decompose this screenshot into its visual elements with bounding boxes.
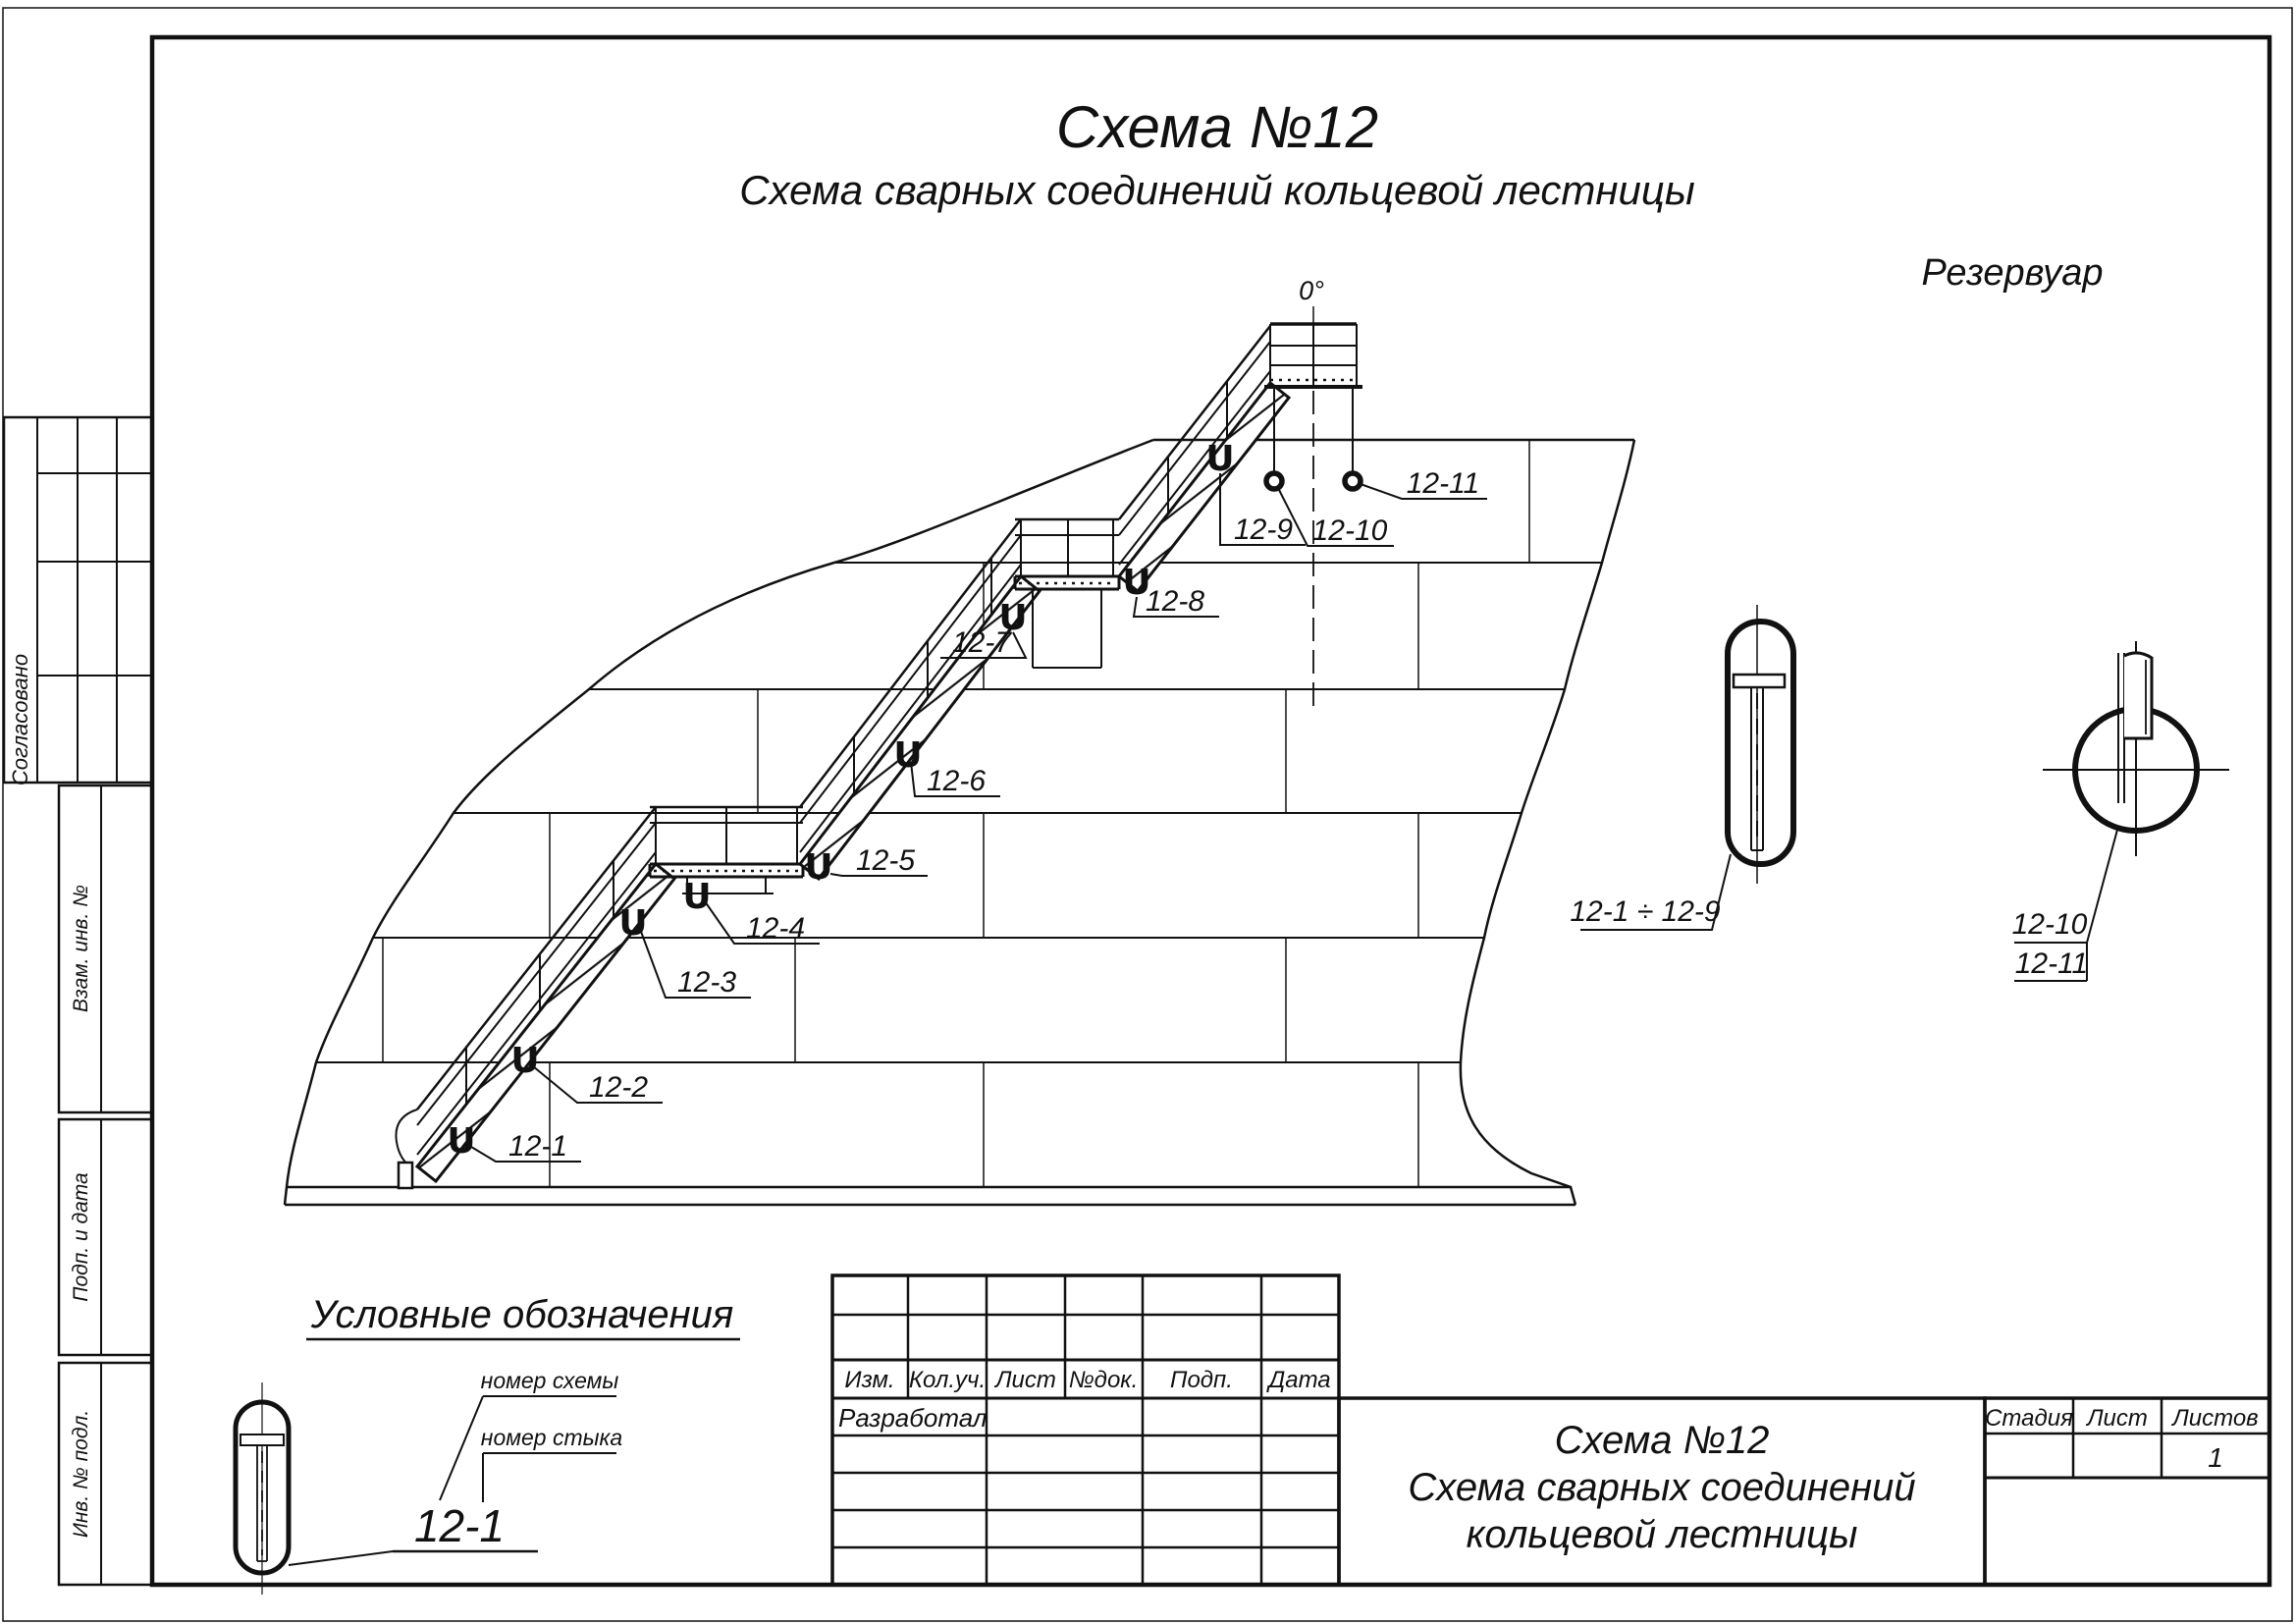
joint-labels: 12-1 12-2 12-3 12-4 12-5 12-6 12-7 12-8 <box>471 467 1487 1163</box>
main-subtitle: Схема сварных соединений кольцевой лестн… <box>739 167 1695 213</box>
title-block: Изм. Кол.уч. Лист №док. Подп. Дата Разра… <box>832 1275 2269 1585</box>
doc-title-cell: Схема №12 Схема сварных соединений кольц… <box>1339 1398 1985 1585</box>
joint-label-text: 12-5 <box>856 844 915 877</box>
legend-example: 12-1 <box>414 1500 505 1551</box>
joint-label-text: 12-2 <box>589 1071 648 1104</box>
joint-label-12-3: 12-3 <box>640 929 751 999</box>
joint-label-12-1: 12-1 <box>471 1130 581 1163</box>
drawing-sheet: Согласовано Взам. инв. № Подп. и дата Ин… <box>0 0 2296 1624</box>
revision-table: Изм. Кол.уч. Лист №док. Подп. Дата Разра… <box>832 1275 1339 1585</box>
rev-header-podp: Подп. <box>1170 1367 1233 1393</box>
joint-label-12-10: 12-10 <box>1278 488 1394 547</box>
weld-marker-12-4: U <box>682 877 711 917</box>
doc-title-line-2: Схема сварных соединений <box>1408 1466 1915 1509</box>
podp-data-label: Подп. и дата <box>70 1172 92 1301</box>
reservoir-label: Резервуар <box>1922 252 2104 294</box>
joint-label-text: 12-1 <box>508 1130 567 1163</box>
stage-sheet-section: Стадия Лист Листов 1 <box>1985 1398 2269 1585</box>
main-title: Схема №12 <box>1056 94 1378 160</box>
joint-label-text: 12-9 <box>1234 514 1293 546</box>
joint-label-text: 12-7 <box>952 626 1012 659</box>
left-stamp-grid: Согласовано <box>4 417 152 785</box>
stair-flight-3 <box>1119 326 1289 591</box>
joint-label-text: 12-8 <box>1146 585 1204 618</box>
weld-ring-12-11 <box>1345 473 1361 489</box>
joint-label-text: 12-4 <box>746 912 805 945</box>
joint-label-text: 12-6 <box>927 765 986 797</box>
angle-label: 0° <box>1299 276 1324 305</box>
rev-header-ndok: №док. <box>1069 1367 1139 1393</box>
sheets-value: 1 <box>2208 1442 2223 1473</box>
zero-degree-centerline: 0° <box>1299 276 1324 713</box>
weld-marker-12-1: U <box>447 1121 475 1162</box>
weld-marker-12-2: U <box>510 1041 539 1081</box>
joint-label-text: 12-11 <box>1407 467 1480 500</box>
doc-title-line-1: Схема №12 <box>1555 1419 1770 1462</box>
detail-circle-label-1: 12-10 <box>2012 908 2088 941</box>
detail-capsule-label: 12-1 ÷ 12-9 <box>1570 895 1721 928</box>
joint-label-text: 12-3 <box>677 966 736 999</box>
spiral-stair: 0° <box>396 276 1362 1188</box>
rev-header-koluch: Кол.уч. <box>909 1367 986 1393</box>
rev-header-izm: Изм. <box>844 1367 894 1393</box>
weld-marker-12-6: U <box>893 735 922 776</box>
approved-label: Согласовано <box>8 654 32 785</box>
joint-label-text: 12-10 <box>1312 514 1388 547</box>
stage-header: Стадия <box>1985 1405 2073 1432</box>
weld-marker-12-9: U <box>1205 439 1234 479</box>
weld-marker-12-5: U <box>804 847 832 888</box>
joint-label-12-2: 12-2 <box>533 1066 663 1104</box>
weld-ring-12-10 <box>1266 473 1282 489</box>
joint-label-12-11: 12-11 <box>1361 467 1487 500</box>
developed-by-label: Разработал <box>838 1403 988 1433</box>
legend-title: Условные обозначения <box>310 1293 733 1336</box>
left-stamp-boxes: Взам. инв. № Подп. и дата Инв. № подл. <box>59 785 152 1585</box>
sheets-header: Листов <box>2170 1405 2258 1432</box>
joint-label-12-8: 12-8 <box>1134 585 1219 618</box>
inv-podl-label: Инв. № подл. <box>70 1410 92 1538</box>
rev-header-list: Лист <box>993 1367 1056 1393</box>
detail-circle-label-2: 12-11 <box>2015 947 2089 980</box>
legend-joint-number: номер стыка <box>481 1425 622 1450</box>
legend-symbol <box>236 1382 289 1595</box>
joint-label-12-6: 12-6 <box>911 762 1000 797</box>
detail-leg-joint: 12-10 12-11 <box>2012 641 2229 981</box>
stair-flight-2 <box>800 519 1040 879</box>
sheet-borders <box>3 8 2292 1621</box>
doc-title-line-3: кольцевой лестницы <box>1467 1513 1858 1556</box>
joint-label-12-9: 12-9 <box>1220 473 1306 546</box>
detail-stringer-joint: 12-1 ÷ 12-9 <box>1570 605 1793 930</box>
drawing-canvas: Согласовано Взам. инв. № Подп. и дата Ин… <box>0 0 2296 1624</box>
rev-header-data: Дата <box>1265 1367 1330 1393</box>
legend: Условные обозначения 12-1 номер схемы но… <box>236 1293 740 1595</box>
joint-label-12-5: 12-5 <box>830 844 928 877</box>
sheet-header: Лист <box>2085 1405 2148 1432</box>
vzam-inv-label: Взам. инв. № <box>70 885 92 1012</box>
legend-scheme-number: номер схемы <box>481 1368 619 1393</box>
